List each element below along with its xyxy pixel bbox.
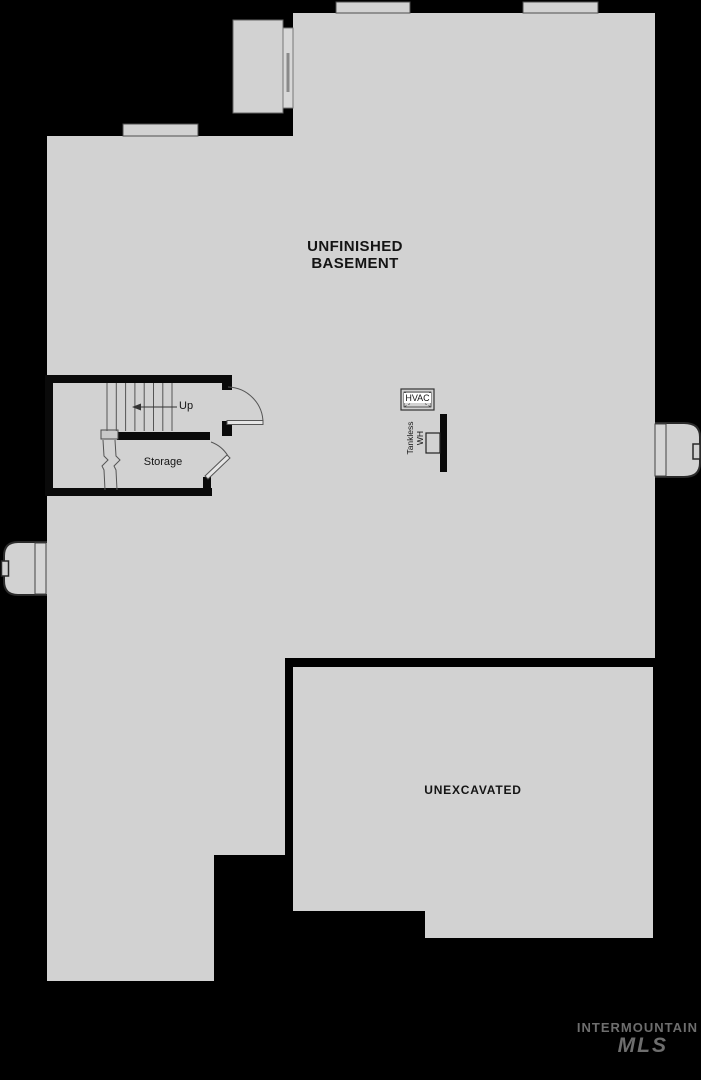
window bbox=[655, 424, 666, 476]
door-leaf bbox=[227, 421, 263, 425]
window bbox=[123, 124, 198, 136]
unexcavated-floor bbox=[293, 667, 653, 938]
stair-wall-bottom bbox=[45, 488, 212, 496]
stair-wall-left bbox=[45, 375, 53, 496]
stair-wall-top bbox=[45, 375, 232, 383]
window bbox=[336, 2, 410, 13]
room-label-line2: BASEMENT bbox=[270, 255, 440, 272]
window-mullion bbox=[287, 53, 290, 92]
hvac-label-text: HVAC bbox=[404, 393, 430, 403]
tankless-wh-label: Tankless WH bbox=[405, 414, 427, 462]
window bbox=[35, 543, 46, 594]
room-label-unexcavated: UNEXCAVATED bbox=[390, 783, 556, 797]
window-well-step bbox=[693, 444, 700, 459]
storage-wall-right bbox=[203, 477, 211, 491]
floor-plan-drawing bbox=[0, 0, 701, 1080]
stair-newel bbox=[101, 430, 118, 439]
watermark-intermountain: INTERMOUNTAIN bbox=[553, 1021, 698, 1035]
stair-mid-wall bbox=[117, 432, 210, 440]
window bbox=[523, 2, 598, 13]
watermark-mls: MLS bbox=[553, 1035, 698, 1056]
room-label-storage: Storage bbox=[118, 456, 208, 468]
water-heater bbox=[426, 433, 440, 453]
plumbing-wall bbox=[440, 414, 447, 472]
mls-watermark: INTERMOUNTAIN MLS bbox=[553, 1021, 698, 1056]
room-label-line1: UNFINISHED bbox=[270, 238, 440, 255]
tankless-label-line2: WH bbox=[415, 414, 425, 462]
hvac-label: HVAC bbox=[401, 394, 434, 403]
stair-wall-right-upper bbox=[222, 375, 232, 390]
tankless-label-line1: Tankless bbox=[405, 414, 415, 462]
room-label-unfinished-basement: UNFINISHED BASEMENT bbox=[270, 238, 440, 272]
floor-plan: UNFINISHED BASEMENT UNEXCAVATED Storage … bbox=[0, 0, 701, 1080]
stairs-up-label: Up bbox=[179, 400, 193, 412]
window-well-step bbox=[2, 561, 9, 576]
window-well bbox=[233, 20, 283, 113]
